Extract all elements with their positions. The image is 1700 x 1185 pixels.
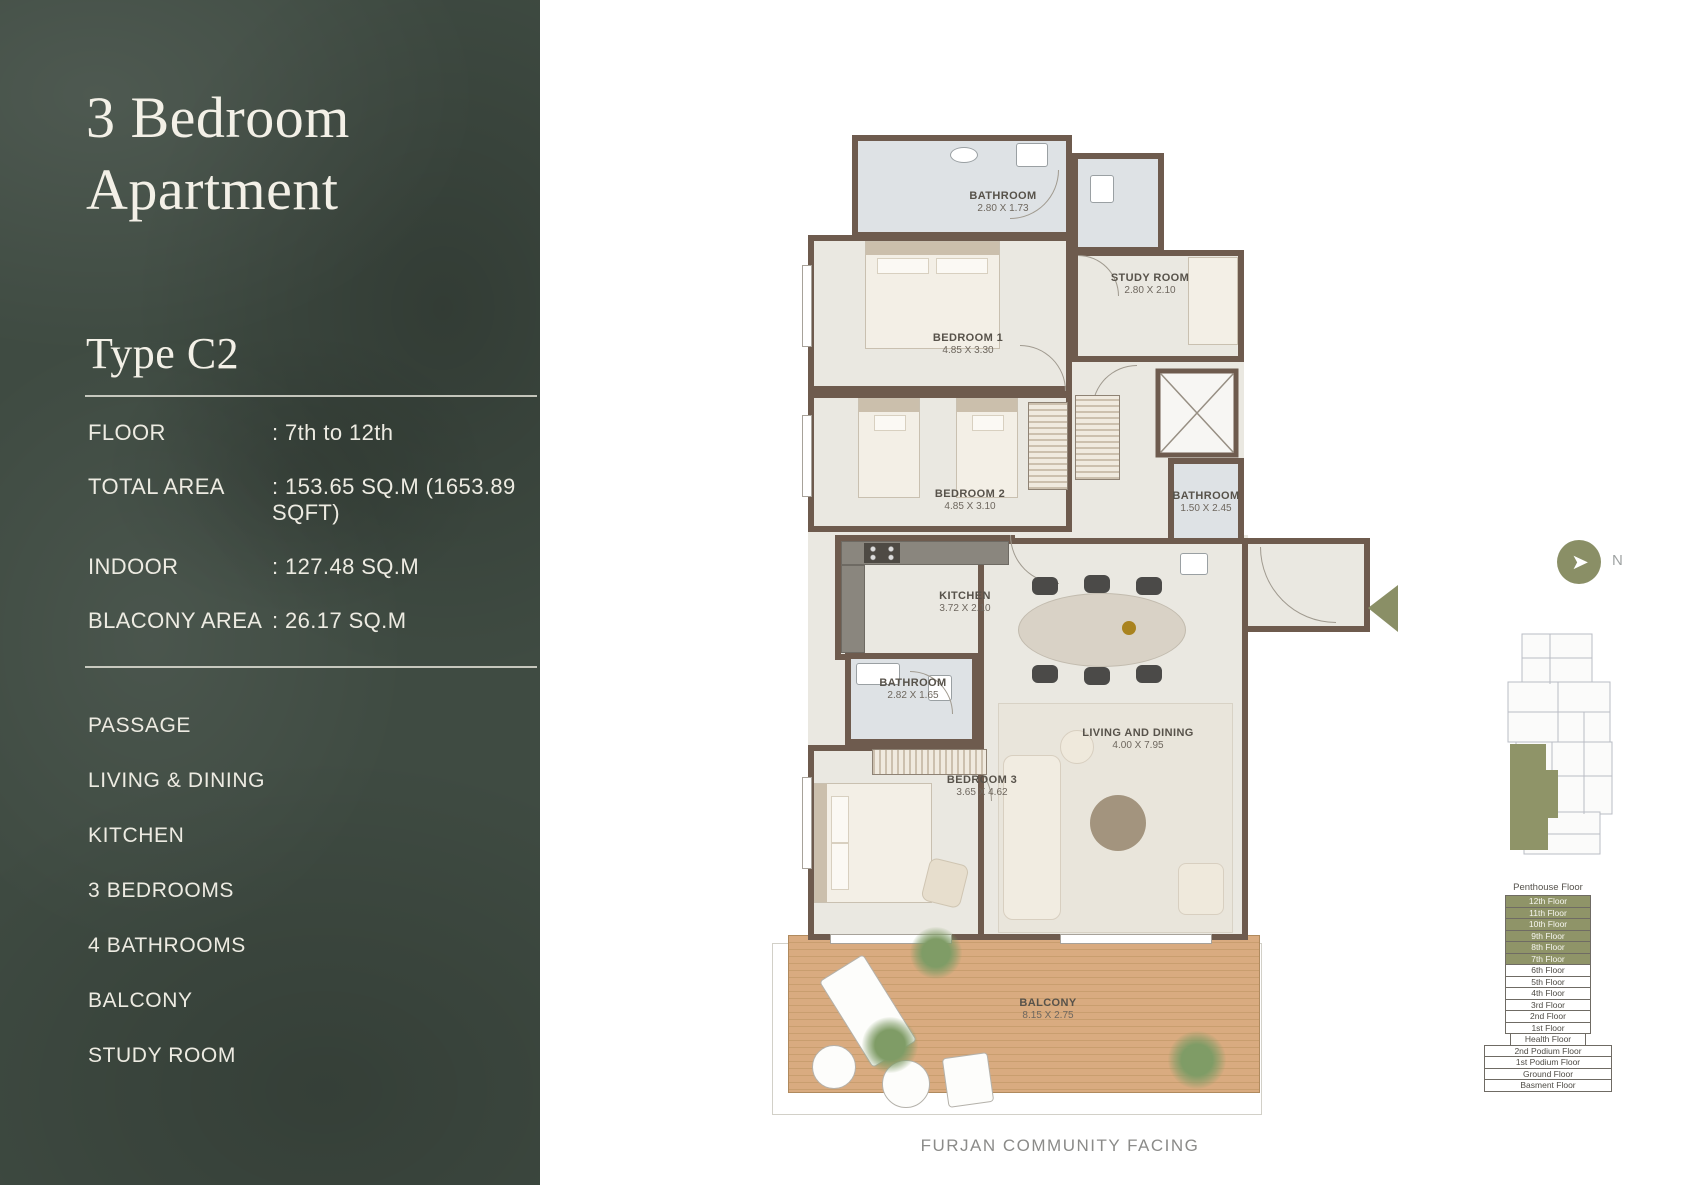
- stove-icon: [864, 543, 900, 563]
- feature-item: LIVING & DINING: [88, 769, 265, 793]
- toilet: [1090, 175, 1114, 203]
- floor-podium-rows: 2nd Podium Floor1st Podium FloorGround F…: [1484, 1045, 1612, 1092]
- floor-stack: Penthouse Floor 12th Floor11th Floor10th…: [1484, 882, 1612, 1092]
- window: [802, 265, 812, 347]
- building-key-plan: [1488, 626, 1628, 866]
- room-wc-top: [1072, 153, 1164, 253]
- detail-label: FLOOR: [88, 420, 272, 446]
- side-table: [812, 1045, 856, 1089]
- compass-north-label: N: [1612, 552, 1623, 569]
- floor-row: Basment Floor: [1484, 1079, 1612, 1092]
- window: [802, 777, 812, 869]
- bed-pillow: [831, 843, 849, 890]
- bed-headboard: [815, 784, 827, 902]
- bed-pillow: [831, 796, 849, 843]
- double-bed: [814, 783, 932, 903]
- info-panel: 3 Bedroom Apartment Type C2 FLOOR : 7th …: [0, 0, 540, 1185]
- room-label-balcony: BALCONY 8.15 X 2.75: [973, 997, 1123, 1021]
- bed-pillow: [874, 415, 906, 431]
- bed-headboard: [859, 399, 919, 412]
- floor-stack-title: Penthouse Floor: [1484, 882, 1612, 893]
- armchair: [1178, 863, 1224, 915]
- window: [802, 415, 812, 497]
- feature-item: BALCONY: [88, 989, 265, 1013]
- window: [1060, 934, 1212, 944]
- detail-value: : 127.48 SQ.M: [272, 554, 540, 580]
- bed-pillow: [877, 258, 930, 274]
- compass-arrow-icon: ➤: [1571, 552, 1589, 573]
- detail-label: INDOOR: [88, 554, 272, 580]
- detail-label: TOTAL AREA: [88, 474, 272, 526]
- dining-chair: [1032, 665, 1058, 683]
- elevator-shaft-icon: [1155, 368, 1239, 458]
- plant: [910, 927, 962, 979]
- details-table: FLOOR : 7th to 12th TOTAL AREA : 153.65 …: [88, 420, 540, 634]
- room-label-bedroom-1: BEDROOM 1 4.85 X 3.30: [893, 332, 1043, 356]
- room-label-living-dining: LIVING AND DINING 4.00 X 7.95: [1063, 727, 1213, 751]
- room-label-bathroom-mid: BATHROOM 1.50 X 2.45: [1131, 490, 1281, 514]
- study-daybed: [1188, 257, 1238, 345]
- detail-value: : 7th to 12th: [272, 420, 540, 446]
- coffee-table: [1090, 795, 1146, 851]
- room-label-study: STUDY ROOM 2.80 X 2.10: [1075, 272, 1225, 296]
- wardrobe: [1075, 395, 1120, 480]
- divider-line: [85, 395, 537, 397]
- brochure-page: 3 Bedroom Apartment Type C2 FLOOR : 7th …: [0, 0, 1700, 1185]
- compass-icon: ➤: [1557, 540, 1601, 584]
- feature-item: KITCHEN: [88, 824, 265, 848]
- dining-chair: [1084, 575, 1110, 593]
- feature-item: 3 BEDROOMS: [88, 879, 265, 903]
- detail-label: BLACONY AREA: [88, 608, 272, 634]
- room-label-bathroom-low: BATHROOM 2.82 X 1.65: [838, 677, 988, 701]
- room-label-bedroom-3: BEDROOM 3 3.65 X 4.62: [907, 774, 1057, 798]
- room-label-kitchen: KITCHEN 3.72 X 2.10: [890, 590, 1040, 614]
- balcony-chair: [942, 1052, 995, 1108]
- detail-value: : 26.17 SQ.M: [272, 608, 540, 634]
- features-list: PASSAGE LIVING & DINING KITCHEN 3 BEDROO…: [88, 714, 265, 1068]
- feature-item: PASSAGE: [88, 714, 265, 738]
- feature-item: 4 BATHROOMS: [88, 934, 265, 958]
- unit-type-label: Type C2: [86, 328, 239, 379]
- plant: [1168, 1031, 1226, 1089]
- room-label-bathroom-top: BATHROOM 2.80 X 1.73: [928, 190, 1078, 214]
- feature-item: STUDY ROOM: [88, 1044, 265, 1068]
- wardrobe: [872, 749, 987, 775]
- dining-chair: [1136, 577, 1162, 595]
- kitchen-counter: [841, 565, 865, 653]
- dining-chair: [1136, 665, 1162, 683]
- dining-table: [1018, 593, 1186, 667]
- sink: [1180, 553, 1208, 575]
- detail-value: : 153.65 SQ.M (1653.89 SQFT): [272, 474, 540, 526]
- toilet: [1016, 143, 1048, 167]
- bed-headboard: [866, 242, 999, 255]
- room-label-bedroom-2: BEDROOM 2 4.85 X 3.10: [895, 488, 1045, 512]
- divider-line: [85, 666, 537, 668]
- bed-pillow: [972, 415, 1004, 431]
- sink: [950, 147, 978, 163]
- single-bed: [956, 398, 1018, 498]
- dining-chair: [1084, 667, 1110, 685]
- single-bed: [858, 398, 920, 498]
- bed-headboard: [957, 399, 1017, 412]
- page-title: 3 Bedroom Apartment: [86, 82, 416, 226]
- table-decor: [1122, 621, 1136, 635]
- entry-arrow-icon: [1368, 585, 1398, 632]
- plant: [862, 1017, 918, 1073]
- bed-pillow: [936, 258, 989, 274]
- floor-plan: BATHROOM 2.80 X 1.73 STUDY ROOM 2.80 X 2…: [760, 115, 1415, 1120]
- floor-tower-rows: 12th Floor11th Floor10th Floor9th Floor8…: [1505, 895, 1591, 1034]
- wardrobe: [1028, 402, 1068, 490]
- plan-caption: FURJAN COMMUNITY FACING: [760, 1136, 1360, 1156]
